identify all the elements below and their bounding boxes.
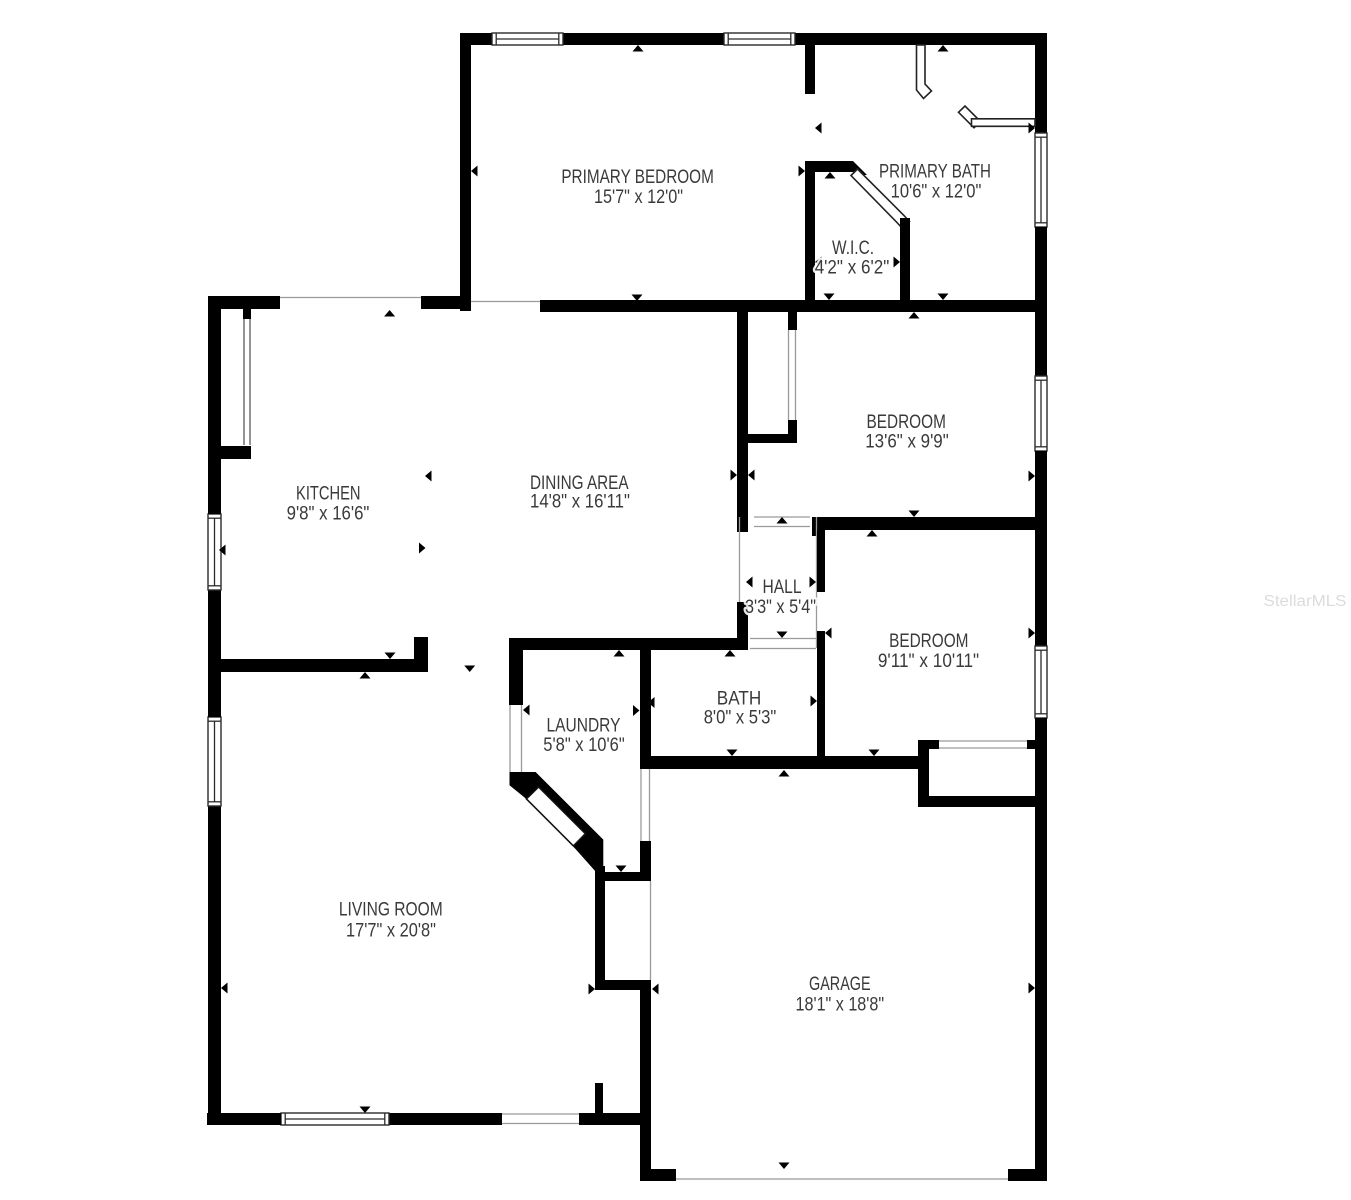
svg-text:GARAGE: GARAGE	[809, 974, 871, 995]
svg-text:LIVING ROOM: LIVING ROOM	[339, 900, 443, 921]
svg-text:5'8" x 10'6": 5'8" x 10'6"	[543, 735, 624, 756]
svg-text:BEDROOM: BEDROOM	[889, 631, 968, 652]
svg-text:LAUNDRY: LAUNDRY	[547, 716, 621, 737]
svg-text:BEDROOM: BEDROOM	[867, 412, 946, 433]
svg-text:KITCHEN: KITCHEN	[296, 484, 361, 505]
svg-text:14'8" x 16'11": 14'8" x 16'11"	[530, 492, 630, 513]
svg-text:18'1" x 18'8": 18'1" x 18'8"	[796, 995, 885, 1016]
svg-text:9'11" x 10'11": 9'11" x 10'11"	[878, 651, 979, 672]
svg-text:StellarMLS: StellarMLS	[1264, 593, 1347, 610]
svg-text:3'3" x 5'4": 3'3" x 5'4"	[745, 597, 816, 618]
svg-text:HALL: HALL	[763, 577, 802, 598]
svg-text:BATH: BATH	[717, 689, 761, 710]
svg-text:W.I.C.: W.I.C.	[832, 238, 874, 259]
svg-text:PRIMARY BATH: PRIMARY BATH	[879, 162, 991, 183]
svg-text:13'6" x 9'9": 13'6" x 9'9"	[865, 431, 949, 452]
svg-text:4'2" x 6'2": 4'2" x 6'2"	[815, 258, 890, 279]
svg-text:17'7" x 20'8": 17'7" x 20'8"	[346, 921, 436, 942]
svg-text:15'7" x 12'0": 15'7" x 12'0"	[594, 187, 683, 208]
svg-text:8'0" x 5'3": 8'0" x 5'3"	[704, 708, 777, 729]
svg-text:9'8" x 16'6": 9'8" x 16'6"	[287, 503, 370, 524]
svg-text:PRIMARY BEDROOM: PRIMARY BEDROOM	[561, 167, 714, 188]
svg-text:10'6" x 12'0": 10'6" x 12'0"	[891, 181, 982, 202]
